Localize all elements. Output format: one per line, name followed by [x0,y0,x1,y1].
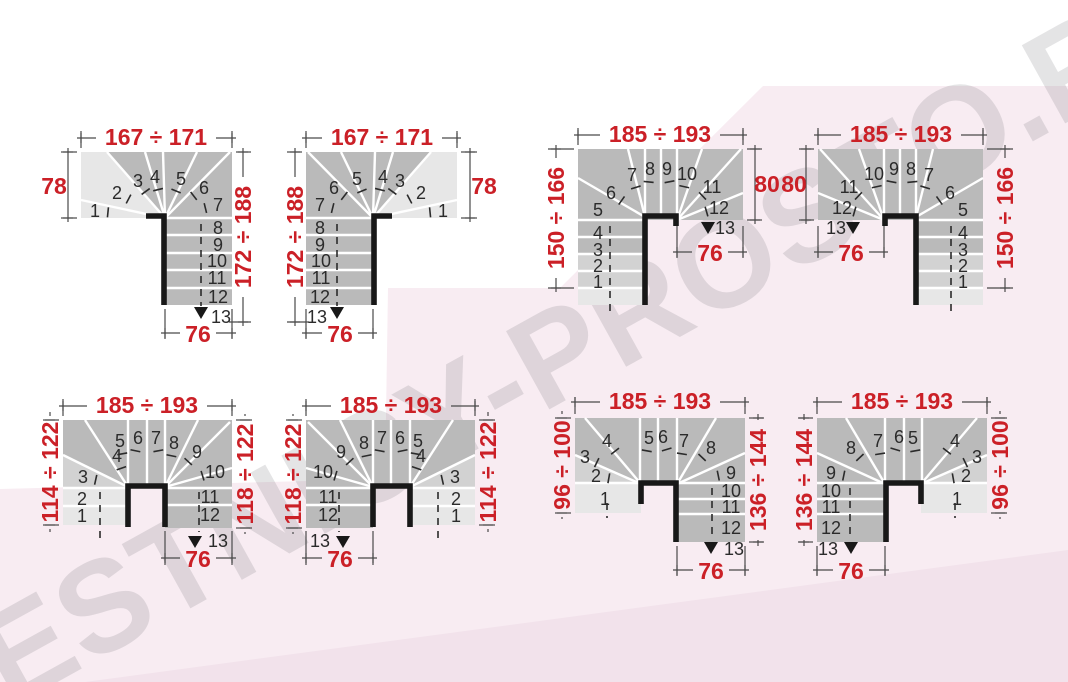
step-number: 11 [312,268,331,288]
step-number: 5 [593,200,603,220]
step-number: 9 [826,463,836,483]
step-number: 12 [709,198,729,218]
step-number: 7 [627,165,637,185]
step-number: 2 [77,489,87,509]
dimension-label: 185 ÷ 193 [850,121,952,147]
step-number: 9 [662,159,672,179]
step-number: 11 [722,497,741,517]
step-number: 2 [451,489,461,509]
dimension-label: 118 ÷ 122 [280,424,306,525]
step-number: 7 [213,195,223,215]
walk-direction-arrow-icon [844,542,858,554]
step-number: 8 [706,438,716,458]
stringer-corner-line [128,486,165,527]
step-number: 5 [176,169,186,189]
step-number: 7 [679,431,689,451]
step-number: 6 [329,178,339,198]
step-number: 6 [395,428,405,448]
step-number: 11 [319,487,338,507]
step-number: 9 [726,463,736,483]
step-number: 2 [112,183,122,203]
dimension-label: 172 ÷ 188 [282,186,308,288]
step-number: 13 [307,307,327,327]
dimension-label: 96 ÷ 100 [549,420,575,509]
stair-diagram-3: 185 ÷ 19376150 ÷ 1668012345678910111213 [543,121,780,316]
step-number: 13 [310,531,330,551]
dimension-label: 185 ÷ 193 [851,388,953,414]
step-number: 13 [715,218,735,238]
dimension-label: 114 ÷ 122 [37,422,63,523]
step-number: 3 [972,447,982,467]
dimension-label: 185 ÷ 193 [96,392,198,418]
dimension-label: 76 [838,558,864,584]
step-number: 12 [208,287,228,307]
stairs-dimension-sheet: LESTNICY-PROSTO.RU 167 ÷ 1717678172 ÷ 18… [0,0,1068,682]
stringer-corner-line [374,216,392,305]
step-number: 4 [958,223,968,243]
step-number: 3 [958,240,968,260]
step-number: 4 [950,431,960,451]
step-number: 7 [315,195,325,215]
dimension-label: 76 [697,240,723,266]
dimension-label: 136 ÷ 144 [745,429,771,531]
dimension-label: 167 ÷ 171 [331,124,433,150]
step-number: 4 [593,223,603,243]
walk-direction-arrow-icon [704,542,718,554]
dimension-label: 118 ÷ 122 [232,424,258,525]
step-number: 4 [602,431,612,451]
walk-direction-arrow-icon [194,307,208,319]
step-number: 12 [310,287,330,307]
step-number: 13 [826,218,846,238]
stringer-corner-line [373,486,410,527]
step-number: 5 [413,431,423,451]
dimension-label: 76 [327,321,353,347]
step-number: 13 [818,539,838,559]
step-number: 13 [208,531,228,551]
step-number: 11 [703,177,722,197]
step-number: 10 [864,164,884,184]
step-number: 7 [151,428,161,448]
step-number: 12 [832,198,852,218]
stair-diagram-4: 185 ÷ 1937680150 ÷ 16612345678910111213 [781,121,1018,316]
stair-diagram-1: 167 ÷ 1717678172 ÷ 18812345678910111213 [41,124,256,347]
step-number: 10 [313,462,333,482]
dimension-label: 76 [327,546,353,572]
dimension-label: 80 [754,171,780,197]
step-number: 11 [822,497,841,517]
dimension-label: 150 ÷ 166 [543,167,569,269]
step-number: 1 [438,201,448,221]
step-number: 8 [846,438,856,458]
step-number: 3 [580,447,590,467]
step-number: 7 [873,431,883,451]
step-number: 4 [378,167,388,187]
stair-diagram-2: 167 ÷ 17176172 ÷ 1887812345678910111213 [282,124,497,347]
step-number: 10 [205,462,225,482]
walk-line-dash [107,207,108,217]
dimension-label: 136 ÷ 144 [791,429,817,531]
step-number: 9 [336,442,346,462]
walk-direction-arrow-icon [330,307,344,319]
step-number: 6 [945,183,955,203]
step-number: 9 [889,159,899,179]
step-number: 8 [645,159,655,179]
stringer-corner-line [641,483,676,542]
step-number: 2 [591,466,601,486]
dimension-label: 114 ÷ 122 [475,422,501,523]
step-number: 12 [821,518,841,538]
step-number: 12 [318,505,338,525]
step-number: 6 [199,178,209,198]
step-number: 11 [840,177,859,197]
step-number: 3 [133,171,143,191]
dimension-label: 76 [838,240,864,266]
step-number: 6 [606,183,616,203]
step-number: 11 [208,268,227,288]
dimension-label: 185 ÷ 193 [340,392,442,418]
walk-line-dash [430,207,431,217]
step-number: 3 [78,467,88,487]
step-number: 8 [906,159,916,179]
dimension-label: 150 ÷ 166 [992,167,1018,269]
step-number: 5 [352,169,362,189]
step-number: 5 [115,431,125,451]
step-number: 7 [377,428,387,448]
walk-direction-arrow-icon [846,222,860,234]
step-number: 4 [150,167,160,187]
step-number: 3 [593,240,603,260]
step-number: 10 [677,164,697,184]
dimension-label: 96 ÷ 100 [987,420,1013,509]
step-number: 5 [908,428,918,448]
step-number: 1 [952,489,962,509]
walk-direction-arrow-icon [701,222,715,234]
step-number: 9 [192,442,202,462]
stringer-corner-line [886,483,921,542]
step-number: 5 [644,428,654,448]
step-number: 6 [894,427,904,447]
step-number: 8 [359,433,369,453]
step-number: 12 [721,518,741,538]
stringer-corner-line [146,216,164,305]
step-number: 8 [169,433,179,453]
step-number: 7 [924,165,934,185]
step-number: 3 [395,171,405,191]
step-number: 5 [958,200,968,220]
walk-line-dash [907,181,917,182]
dimension-label: 78 [41,173,67,199]
dimension-label: 76 [185,546,211,572]
step-number: 12 [200,505,220,525]
step-number: 1 [451,506,461,526]
stair-diagram-8: 185 ÷ 19376136 ÷ 14496 ÷ 100123456789101… [791,388,1013,584]
step-number: 1 [77,506,87,526]
stringer-corner-line [645,216,676,305]
stair-diagram-6: 185 ÷ 19376118 ÷ 122114 ÷ 12212345678910… [280,392,501,572]
dimension-label: 80 [781,171,807,197]
stair-diagram-5: 185 ÷ 19376114 ÷ 122118 ÷ 12212345678910… [37,392,258,572]
step-number: 2 [416,183,426,203]
step-number: 13 [724,539,744,559]
dimension-label: 167 ÷ 171 [105,124,207,150]
dimension-label: 185 ÷ 193 [609,121,711,147]
step-number: 1 [90,201,100,221]
stair-diagram-7: 185 ÷ 1937696 ÷ 100136 ÷ 144123456789101… [549,388,771,584]
step-number: 6 [133,428,143,448]
step-number: 6 [658,427,668,447]
dimension-label: 76 [698,558,724,584]
step-number: 3 [450,467,460,487]
dimension-label: 78 [471,173,497,199]
stringer-corner-line [885,216,916,305]
step-number: 13 [211,307,231,327]
step-number: 2 [961,466,971,486]
step-number: 11 [201,487,220,507]
dimension-label: 185 ÷ 193 [609,388,711,414]
walk-line-dash [644,181,654,182]
dimension-label: 76 [185,321,211,347]
step-number: 1 [600,489,610,509]
stair-diagrams: 167 ÷ 1717678172 ÷ 188123456789101112131… [0,0,1068,682]
dimension-label: 172 ÷ 188 [230,186,256,288]
